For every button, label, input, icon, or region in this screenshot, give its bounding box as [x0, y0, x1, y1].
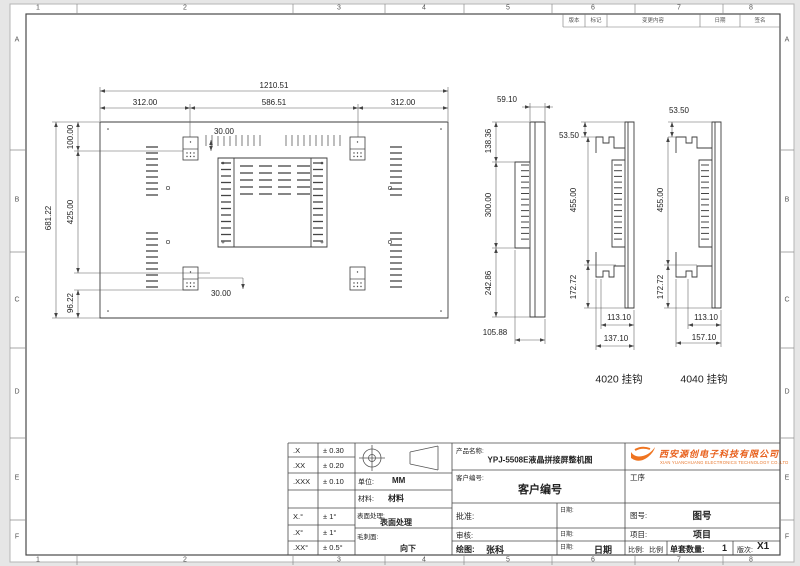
grid-row-label: D — [784, 389, 789, 396]
dim-4020-bottom: 172.72 — [570, 274, 578, 300]
date-label: 日期: — [560, 542, 574, 551]
grid-row-label: E — [785, 475, 790, 482]
revision-col-sign: 签名 — [754, 16, 765, 24]
grid-row-label: B — [15, 197, 20, 204]
dim-4020-top-offset: 53.50 — [558, 132, 580, 140]
tolerance-symbol: .XX° — [293, 543, 308, 552]
company-logo-icon — [629, 445, 657, 465]
qty-value: 1 — [722, 543, 727, 553]
project-label: 项目: — [630, 529, 647, 540]
company-name-en: XIAN YUANCHUANG ELECTRONICS TECHNOLOGY C… — [660, 460, 789, 465]
grid-col-label: 8 — [749, 5, 753, 12]
revision-col-version: 版本 — [568, 16, 579, 24]
grid-col-label: 4 — [422, 557, 426, 564]
view-label-4020: 4020 挂钩 — [595, 372, 642, 387]
grid-col-label: 1 — [36, 557, 40, 564]
grid-row-label: F — [785, 534, 789, 541]
scale-label: 比例: — [628, 545, 644, 555]
dim-right: 312.00 — [390, 99, 416, 107]
grid-col-label: 1 — [36, 5, 40, 12]
dim-left: 312.00 — [132, 99, 158, 107]
dim-4040-bottom: 172.72 — [657, 274, 665, 300]
unit-value: MM — [392, 476, 405, 485]
grid-row-label: A — [15, 37, 20, 44]
grid-col-label: 2 — [183, 5, 187, 12]
dim-height-top: 100.00 — [67, 124, 75, 150]
material-value: 材料 — [388, 493, 404, 504]
rev-value: X1 — [757, 541, 769, 552]
tolerance-value: ± 0.20 — [323, 461, 344, 470]
drawing-no-value: 图号 — [692, 508, 711, 522]
dim-thickness: 59.10 — [496, 96, 518, 104]
burr-value: 向下 — [400, 543, 416, 554]
grid-col-label: 2 — [183, 557, 187, 564]
tolerance-value: ± 0.5° — [323, 543, 343, 552]
tolerance-symbol: .XXX — [293, 477, 310, 486]
dim-side-depth: 105.88 — [482, 329, 508, 337]
revision-col-change: 变更内容 — [642, 16, 664, 24]
product-name-label: 产品名称: — [456, 445, 484, 455]
dim-4040-mid: 455.00 — [657, 187, 665, 213]
dim-total-width: 1210.51 — [259, 82, 290, 90]
tolerance-symbol: .X — [293, 446, 300, 455]
grid-row-label: F — [15, 534, 19, 541]
drawing-sheet-page: 1 2 3 4 5 6 7 8 1 2 3 4 5 6 7 8 A B C D … — [0, 0, 800, 566]
rev-label: 版次: — [737, 545, 753, 555]
view-label-4040: 4040 挂钩 — [680, 372, 727, 387]
project-value: 项目 — [693, 528, 711, 541]
grid-col-label: 5 — [506, 557, 510, 564]
review-label: 审核: — [456, 530, 473, 541]
customer-value: 客户编号 — [518, 481, 562, 497]
dim-top-offset: 30.00 — [213, 128, 235, 136]
dim-4020-hook: 113.10 — [606, 314, 632, 322]
dim-height-mid: 425.00 — [67, 199, 75, 225]
dim-4020-mid: 455.00 — [570, 187, 578, 213]
burr-label: 毛刺面: — [357, 531, 378, 541]
tolerance-value: ± 0.10 — [323, 477, 344, 486]
grid-col-label: 4 — [422, 5, 426, 12]
dim-side-top: 138.36 — [485, 128, 493, 154]
date-label: 日期: — [560, 505, 574, 514]
process-label: 工序 — [630, 472, 645, 483]
tolerance-symbol: X.° — [293, 512, 303, 521]
scale-value: 比例 — [649, 545, 663, 555]
approve-label: 批准: — [456, 511, 474, 522]
unit-label: 单位: — [358, 477, 374, 487]
dim-4040-hook: 113.10 — [693, 314, 719, 322]
grid-col-label: 6 — [591, 5, 595, 12]
tolerance-value: ± 1° — [323, 528, 336, 537]
qty-label: 单套数量: — [670, 544, 705, 555]
tolerance-value: ± 1° — [323, 512, 336, 521]
dim-bottom-offset: 30.00 — [210, 290, 232, 298]
grid-row-label: C — [14, 297, 19, 304]
grid-row-label: B — [785, 197, 790, 204]
surface-value: 表面处理 — [380, 517, 412, 528]
drawing-no-label: 图号: — [630, 510, 647, 521]
dim-4020-depth: 137.10 — [603, 335, 629, 343]
dim-total-height: 681.22 — [45, 205, 53, 231]
grid-col-label: 3 — [337, 557, 341, 564]
draw-label: 绘图: — [456, 544, 475, 555]
grid-row-label: A — [785, 37, 790, 44]
grid-col-label: 5 — [506, 5, 510, 12]
tolerance-symbol: .X° — [293, 528, 303, 537]
dim-side-bottom: 242.86 — [485, 270, 493, 296]
drawer-name: 张科 — [486, 543, 504, 556]
grid-row-label: E — [15, 475, 20, 482]
product-name: YPJ-5508E液晶拼接屏整机图 — [488, 455, 593, 466]
grid-col-label: 7 — [677, 557, 681, 564]
grid-row-label: C — [784, 297, 789, 304]
company-name-cn: 西安源创电子科技有限公司 — [659, 447, 779, 460]
grid-col-label: 8 — [749, 557, 753, 564]
dim-side-mid: 300.00 — [485, 192, 493, 218]
customer-label: 客户编号: — [456, 472, 484, 482]
dim-4040-depth: 157.10 — [691, 334, 717, 342]
tolerance-value: ± 0.30 — [323, 446, 344, 455]
date-value: 日期 — [594, 543, 612, 556]
revision-col-mark: 标记 — [590, 16, 601, 24]
tolerance-symbol: .XX — [293, 461, 305, 470]
grid-col-label: 6 — [591, 557, 595, 564]
dim-4040-top-offset: 53.50 — [668, 107, 690, 115]
material-label: 材料: — [358, 494, 374, 504]
dim-height-bottom: 96.22 — [67, 292, 75, 314]
grid-col-label: 3 — [337, 5, 341, 12]
revision-col-date: 日期 — [714, 16, 725, 24]
grid-row-label: D — [14, 389, 19, 396]
grid-col-label: 7 — [677, 5, 681, 12]
date-label: 日期: — [560, 529, 574, 538]
dim-center: 586.51 — [261, 99, 287, 107]
